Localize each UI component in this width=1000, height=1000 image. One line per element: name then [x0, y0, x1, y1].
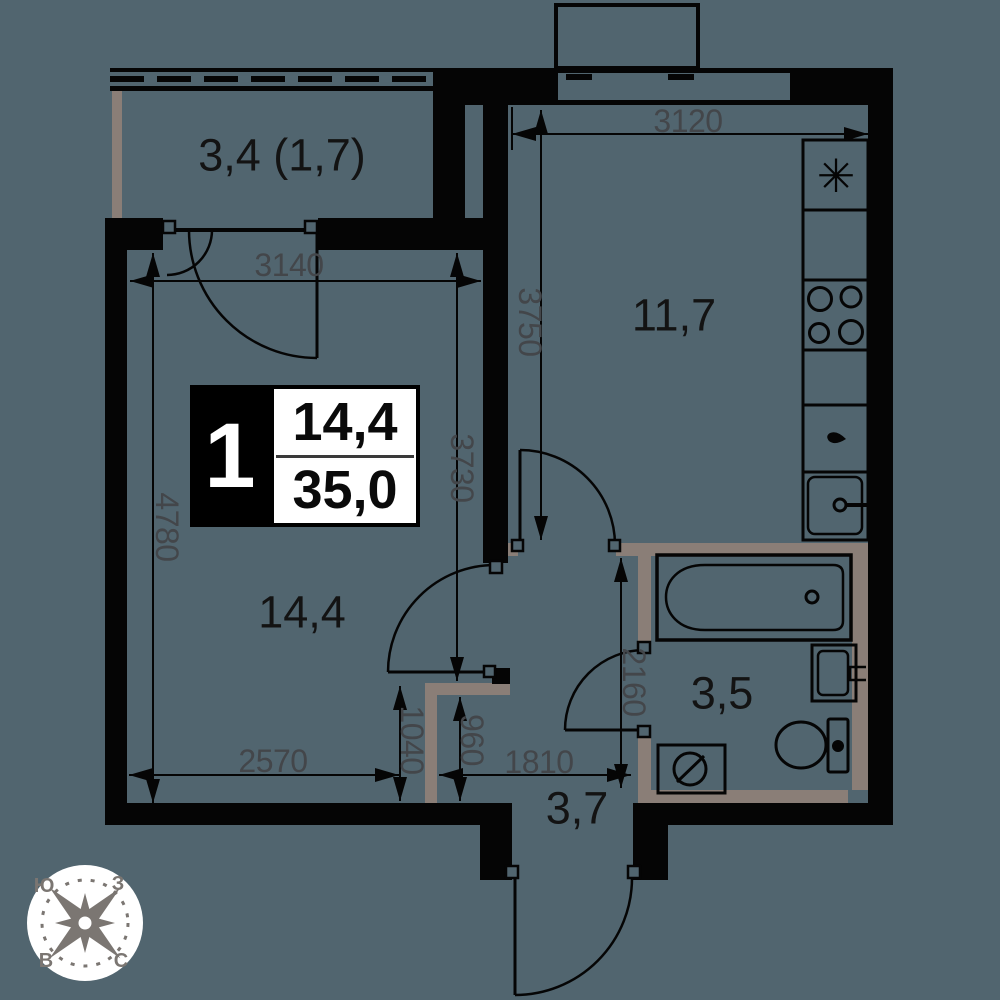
washbasin-bowl [818, 651, 848, 695]
jamb [490, 561, 502, 573]
dimension-4780: 4780 [151, 492, 183, 561]
bathroom-fixtures [657, 555, 866, 793]
toilet-bowl [776, 722, 826, 768]
jamb [512, 540, 523, 551]
compass-hub [76, 914, 94, 932]
bathroom-left-wall-upper [638, 543, 651, 652]
compass-label-west: З [112, 874, 125, 894]
balcony-glazing [110, 68, 433, 91]
window-outer-line [558, 68, 790, 73]
burner [809, 288, 832, 311]
dimension-3120: 3120 [653, 105, 722, 137]
sink-faucet [834, 499, 846, 511]
floor-plan: ✳ [0, 0, 1000, 1000]
room-count-badge: 1 [190, 385, 270, 527]
room-label-hallway: 3,7 [546, 786, 609, 831]
room-label-balcony: 3,4 (1,7) [198, 133, 366, 178]
balcony-living-wall-right [318, 218, 508, 250]
jamb [506, 866, 518, 878]
arrow [512, 127, 536, 141]
jamb [305, 221, 317, 233]
arrow [450, 253, 464, 277]
toilet-flush-button [834, 742, 843, 751]
washing-machine-door-slash [677, 756, 704, 782]
railing-inner-line [110, 86, 433, 91]
top-wall-right-of-window [790, 68, 893, 105]
bathroom-right-wall [852, 556, 868, 790]
room-count: 1 [204, 404, 255, 509]
kitchen-window [558, 68, 790, 105]
apartment-info-block: 1 14,4 35,0 [190, 385, 420, 527]
door-jambs [163, 221, 650, 878]
dimension-2570: 2570 [238, 745, 307, 777]
room-label-bathroom: 3,5 [691, 671, 754, 716]
room-label-living: 14,4 [258, 590, 346, 635]
living-kitchen-divider-wall [483, 105, 508, 563]
compass-label-east: В [39, 951, 53, 971]
jamb [609, 540, 620, 551]
dimension-960: 960 [456, 714, 488, 766]
bathtub-basin [666, 565, 843, 630]
jamb [628, 866, 640, 878]
arrow [534, 110, 548, 134]
right-wall [868, 68, 893, 825]
kitchen-cabinet [803, 350, 868, 405]
living-door-swing-arc [388, 565, 495, 672]
arrow [393, 777, 407, 801]
jamb [638, 726, 650, 737]
entrance-door-swing-arc [515, 878, 632, 995]
dimension-1040: 1040 [396, 705, 428, 774]
bathtub-drain [806, 591, 818, 603]
kitchen-fixtures: ✳ [803, 140, 868, 540]
arrow [146, 253, 160, 277]
refrigerator-icon: ✳ [817, 150, 856, 202]
railing-outer-line [110, 68, 433, 72]
bottom-wall-right [633, 803, 893, 825]
room-label-kitchen: 11,7 [632, 293, 716, 338]
window-mullion [668, 74, 694, 80]
kitchen-door-swing-arc [520, 450, 615, 545]
kitchen-cabinet [803, 210, 868, 280]
balcony-living-wall-left [105, 218, 163, 250]
dimension-3140: 3140 [254, 249, 323, 281]
arrow [453, 777, 467, 801]
jamb [484, 666, 495, 677]
burner [841, 287, 861, 307]
balcony-window-sill-line [175, 228, 307, 232]
burner [810, 324, 829, 343]
compass-label-south: Ю [34, 876, 55, 896]
arrow [534, 516, 548, 540]
dimension-2160: 2160 [618, 647, 650, 716]
living-area-value: 14,4 [274, 389, 416, 455]
compass-label-north: С [114, 951, 128, 971]
dimension-3750: 3750 [514, 287, 546, 356]
niche-top-wall [425, 683, 510, 695]
total-area-value: 35,0 [274, 458, 416, 524]
bottom-wall-left [105, 803, 512, 825]
balcony-left-partition [112, 87, 122, 218]
window-mullion [566, 74, 592, 80]
left-wall [105, 218, 127, 825]
dimension-1810: 1810 [504, 746, 573, 778]
arrow [146, 779, 160, 803]
jamb [163, 221, 175, 233]
burner [840, 321, 863, 344]
balcony-above-outline [556, 5, 698, 68]
area-panel: 14,4 35,0 [270, 385, 420, 527]
arrow [450, 657, 464, 681]
dimension-3730: 3730 [446, 433, 478, 502]
arrow [614, 558, 628, 582]
cabinet-handle-mark [827, 432, 846, 443]
